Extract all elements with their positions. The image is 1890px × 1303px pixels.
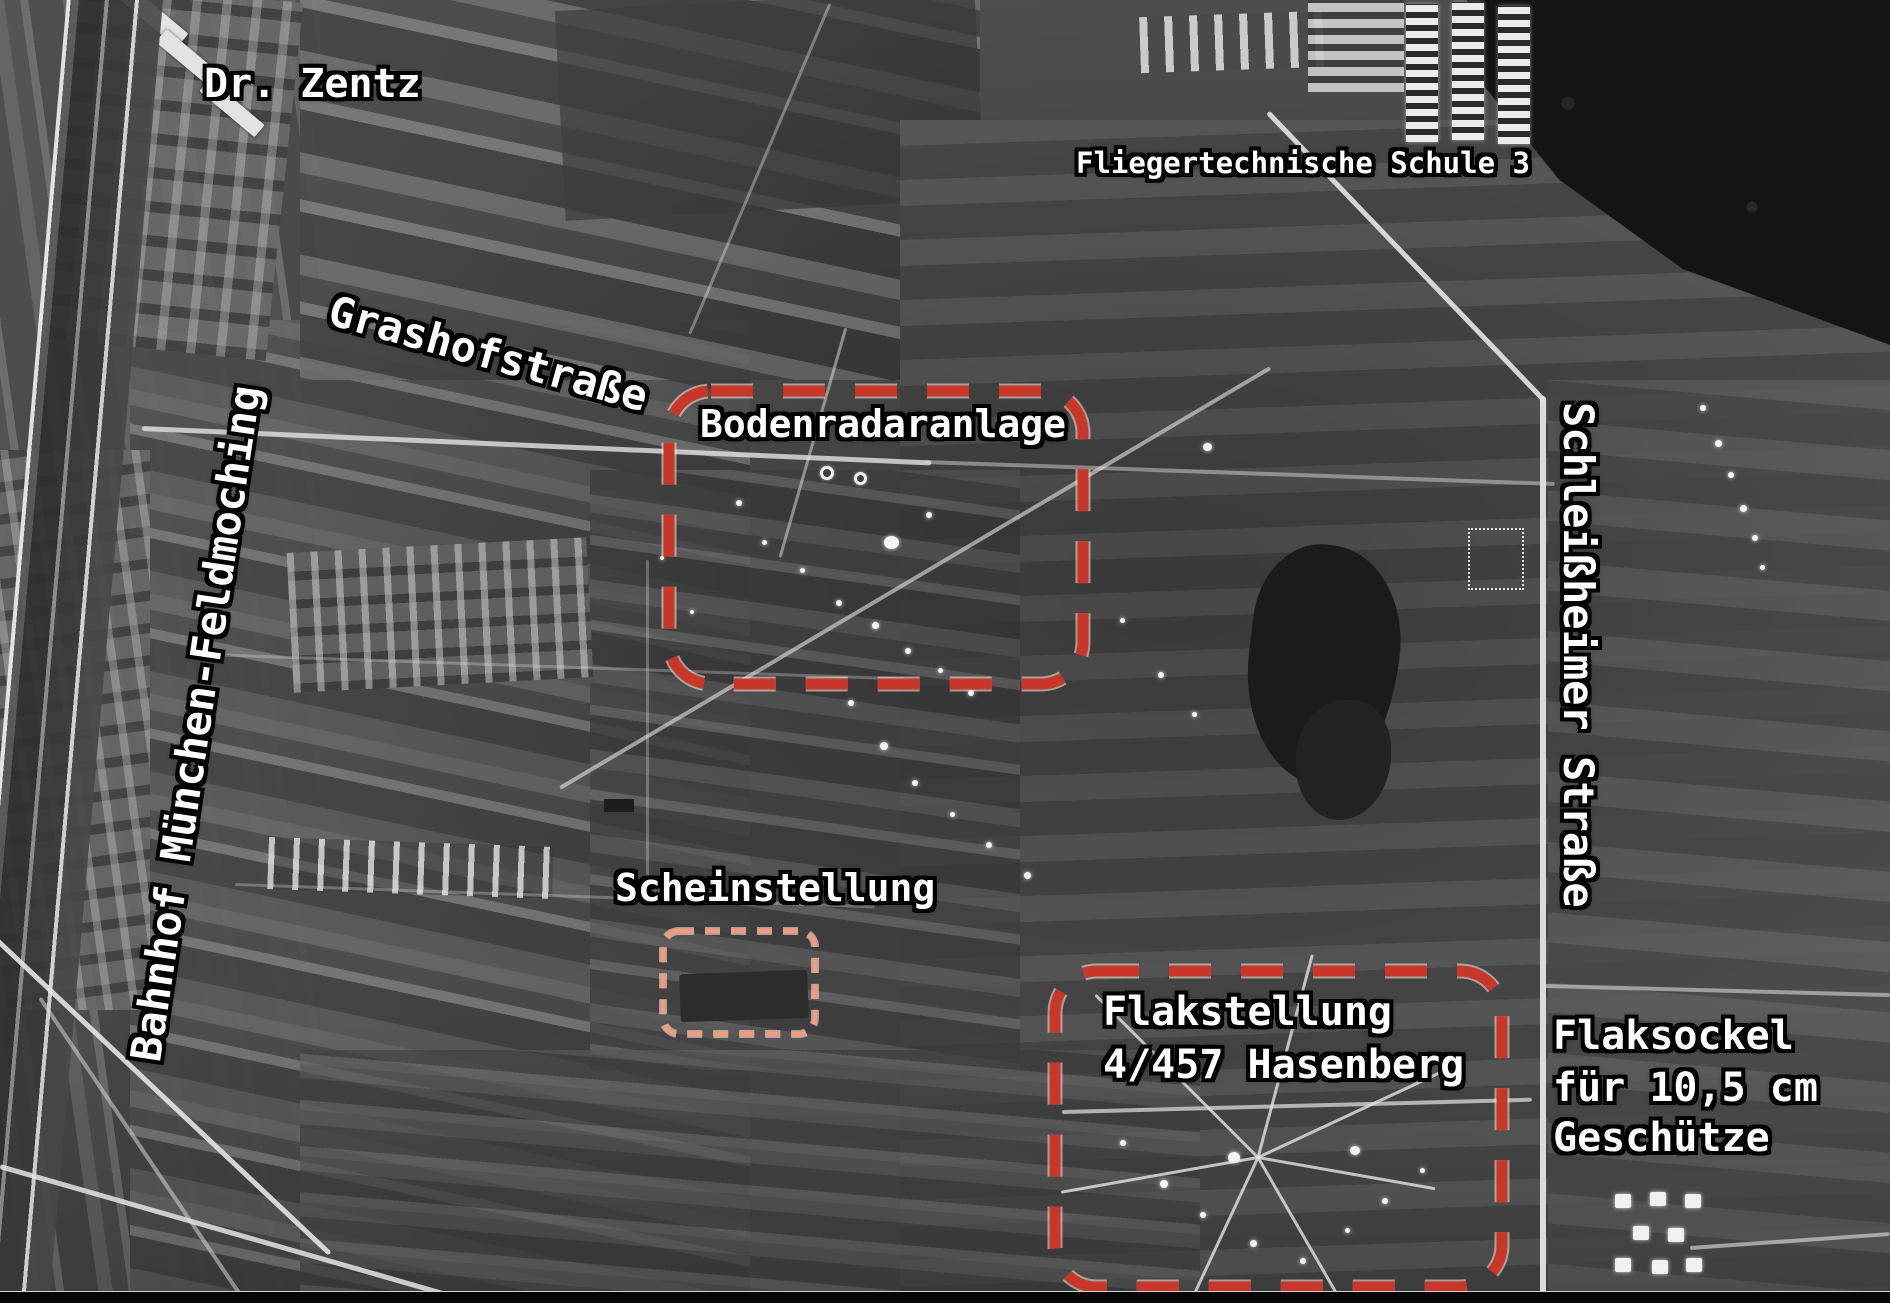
- label-schleissheimer-strasse: Schleißheimer Straße: [1555, 402, 1601, 908]
- photo-bottom-border: [0, 1291, 1890, 1303]
- label-flaksockel-line3: Geschütze: [1553, 1116, 1770, 1160]
- label-scheinstellung: Scheinstellung: [615, 868, 935, 910]
- annotated-aerial-photograph: Dr. Zentz Fliegertechnische Schule 3 Gra…: [0, 0, 1890, 1303]
- label-bodenradaranlage: Bodenradaranlage: [700, 404, 1066, 446]
- scheinstellung-marker-box: [663, 931, 815, 1034]
- label-flaksockel-line2: für 10,5 cm: [1553, 1066, 1818, 1110]
- label-flakstellung-line1: Flakstellung: [1103, 990, 1392, 1034]
- label-flaksockel-line1: Flaksockel: [1553, 1014, 1794, 1058]
- label-flakstellung-line2: 4/457 Hasenberg: [1103, 1043, 1464, 1087]
- label-fliegertechnische-schule: Fliegertechnische Schule 3: [1076, 148, 1530, 180]
- label-dr-zentz: Dr. Zentz: [204, 62, 421, 106]
